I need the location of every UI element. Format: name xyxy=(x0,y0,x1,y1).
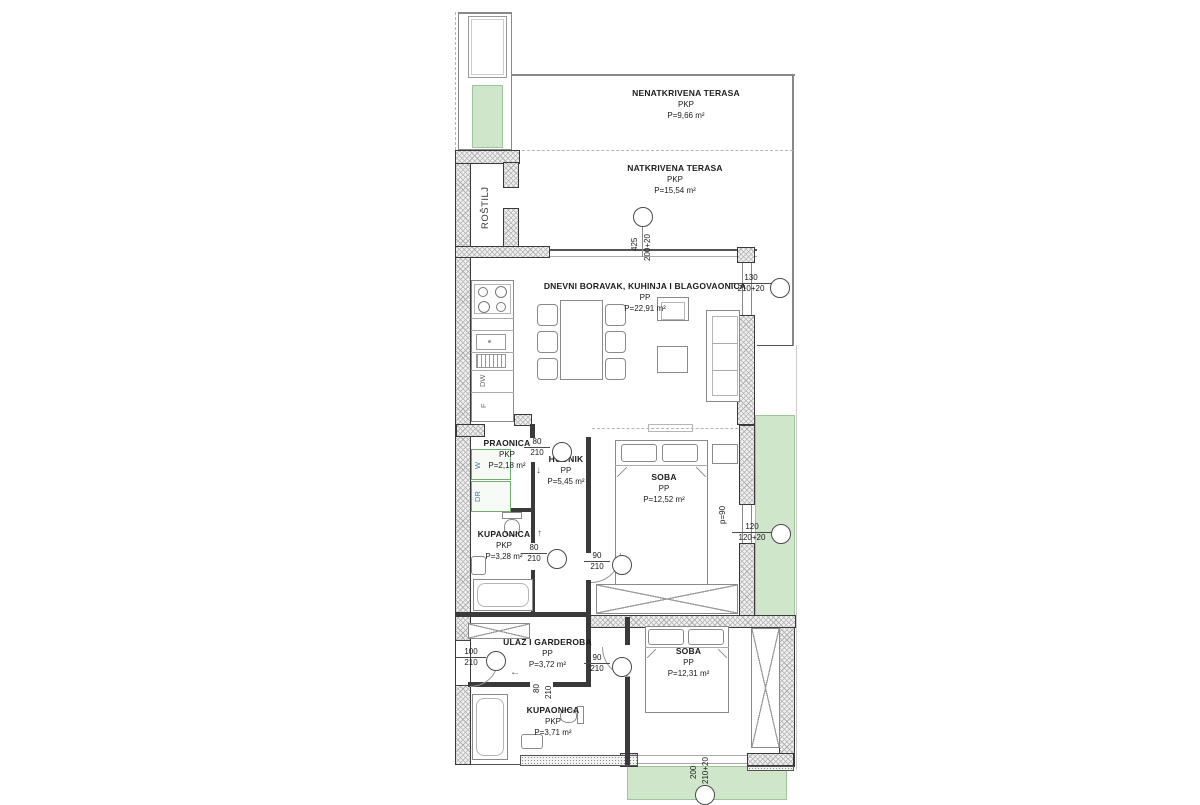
chair xyxy=(605,358,626,380)
bed-line xyxy=(615,465,708,466)
pillow xyxy=(621,444,657,462)
dim-circle xyxy=(552,442,572,462)
chair xyxy=(537,358,558,380)
dishwasher-label: DW xyxy=(479,372,487,390)
site-edge-east xyxy=(796,345,797,770)
room-label-soba-1: SOBA PP P=12,52 m² xyxy=(608,472,720,505)
terrace-divider-dashed xyxy=(512,150,793,151)
dim-circle xyxy=(633,207,653,227)
window-200-glass xyxy=(638,755,747,756)
wall-soba1-east-lower xyxy=(739,543,755,617)
dim-soba1-window: 120 120+20 xyxy=(732,522,772,543)
dim-height: 120+20 xyxy=(732,533,772,543)
dish-rack xyxy=(476,354,506,368)
wall-praonica-corner xyxy=(456,424,485,437)
wall-kitchen-north xyxy=(455,246,550,258)
room-type: PKP xyxy=(667,175,683,186)
room-type: PKP xyxy=(678,100,694,111)
room-area: P=15,54 m² xyxy=(654,186,696,197)
threshold-south xyxy=(520,755,638,766)
room-type: PP xyxy=(683,658,694,669)
dim-width: 80 xyxy=(524,437,550,448)
dim-height: 210 xyxy=(521,554,547,564)
room-area: P=5,45 m² xyxy=(547,477,584,488)
dim-height: 210 xyxy=(584,562,610,572)
room-area: P=3,71 m² xyxy=(534,728,571,739)
beam-marker xyxy=(648,424,693,432)
wall-pillar-ne xyxy=(737,247,755,263)
dim-parapet: p=90 xyxy=(719,500,727,530)
pillow xyxy=(688,629,724,645)
stove-burner xyxy=(478,287,488,297)
room-area: P=9,66 m² xyxy=(667,111,704,122)
wall-rostilj-right-upper xyxy=(503,162,519,188)
wall-segment xyxy=(625,677,630,765)
dim-width: 120 xyxy=(732,522,772,533)
dim-dnevni-door: 130 210+20 xyxy=(730,273,772,294)
room-label-natkrivena-terasa: NATKRIVENA TERASA PKP P=15,54 m² xyxy=(575,163,775,196)
dim-circle xyxy=(695,785,715,805)
counter-divider xyxy=(471,352,514,353)
room-name: SOBA xyxy=(651,472,676,484)
terrace-east-edge xyxy=(792,74,794,346)
dim-kupaonica2-door-height: 210 xyxy=(545,678,553,706)
room-name: NATKRIVENA TERASA xyxy=(627,163,723,175)
sofa-divider xyxy=(712,370,738,371)
dim-circle xyxy=(547,549,567,569)
room-name: KUPAONICA xyxy=(527,705,580,717)
room-area: P=2,18 m² xyxy=(488,461,525,472)
counter-divider xyxy=(471,392,514,393)
room-name: KUPAONICA xyxy=(478,529,531,541)
dim-width: 100 xyxy=(456,647,486,658)
dim-circle xyxy=(486,651,506,671)
pillow xyxy=(662,444,698,462)
room-type: PP xyxy=(640,293,651,304)
room-name: NENATKRIVENA TERASA xyxy=(632,88,740,100)
wardrobe xyxy=(751,628,780,748)
room-area: P=12,31 m² xyxy=(668,669,710,680)
room-label-nenatkrivena-terasa: NENATKRIVENA TERASA PKP P=9,66 m² xyxy=(586,88,786,121)
counter-divider xyxy=(471,370,514,371)
green-area-east xyxy=(755,415,795,625)
room-area: P=22,91 m² xyxy=(624,304,666,315)
room-name: SOBA xyxy=(676,646,701,658)
room-type: PKP xyxy=(545,717,561,728)
sink-drain xyxy=(488,340,491,343)
bathtub-inner xyxy=(477,583,529,607)
wardrobe xyxy=(596,584,738,614)
stove-burner xyxy=(495,286,507,298)
wall-segment xyxy=(586,580,591,615)
chair xyxy=(537,331,558,353)
room-area: P=3,72 m² xyxy=(529,660,566,671)
toilet-tank xyxy=(502,512,522,519)
counter-divider xyxy=(471,330,514,331)
dim-soba2-window-width: 200 xyxy=(690,758,698,786)
kitchen-sink xyxy=(476,334,506,350)
dim-height: 210+20 xyxy=(730,284,772,294)
stove-burner xyxy=(496,302,506,312)
dim-width: 90 xyxy=(584,551,610,562)
dim-width: 90 xyxy=(584,653,610,664)
wall-segment xyxy=(625,617,630,645)
balcony-window xyxy=(468,16,507,78)
terrace-south-edge xyxy=(757,345,793,346)
dryer-label: DR xyxy=(474,487,482,507)
dim-praonica-door: 80 210 xyxy=(524,437,550,458)
dim-soba1-door: 90 210 xyxy=(584,551,610,572)
site-boundary-line xyxy=(455,12,456,150)
wall-segment xyxy=(553,682,591,687)
chair xyxy=(605,331,626,353)
room-type: PKP xyxy=(499,450,515,461)
room-area: P=12,52 m² xyxy=(643,495,685,506)
sofa-divider xyxy=(712,343,738,344)
dim-circle xyxy=(612,555,632,575)
room-type: PP xyxy=(659,484,670,495)
room-name: DNEVNI BORAVAK, KUHINJA I BLAGOVAONICA xyxy=(544,281,746,293)
dim-width: 80 xyxy=(521,543,547,554)
wall-south-right xyxy=(747,753,794,766)
nightstand xyxy=(712,444,738,464)
dim-terasa-width: 425 xyxy=(631,227,639,261)
room-area: P=3,28 m² xyxy=(485,552,522,563)
coffee-table xyxy=(657,346,688,373)
dim-entry-door: 100 210 xyxy=(456,647,486,668)
pillow xyxy=(648,629,684,645)
room-type: PKP xyxy=(496,541,512,552)
dim-kupaonica2-door-width: 80 xyxy=(533,678,541,700)
dim-circle xyxy=(612,657,632,677)
wall-segment xyxy=(456,612,591,617)
room-label-kupaonica-2: KUPAONICA PKP P=3,71 m² xyxy=(493,705,613,738)
wall-rostilj-right-lower xyxy=(503,208,519,248)
threshold-south-right xyxy=(747,766,794,771)
wall-segment xyxy=(530,424,535,438)
wall-soba2-east xyxy=(779,627,795,767)
wall-soba1-east-upper xyxy=(739,425,755,505)
dim-kupaonica1-door: 80 210 xyxy=(521,543,547,564)
dim-height: 210 xyxy=(456,658,486,668)
dim-soba2-door: 90 210 xyxy=(584,653,610,674)
dim-height: 210 xyxy=(524,448,550,458)
floor-plan: DW F W DR ↓ ↑ ← xyxy=(0,0,1200,800)
dim-circle xyxy=(771,524,791,544)
terrace-north-edge xyxy=(512,74,795,76)
counter-divider xyxy=(471,318,514,319)
sofa-cushions xyxy=(712,316,738,396)
dim-circle xyxy=(770,278,790,298)
dim-height: 210 xyxy=(584,664,610,674)
dim-width: 130 xyxy=(730,273,772,284)
dim-soba2-window-height: 210+20 xyxy=(702,754,710,788)
stove-burner xyxy=(478,301,490,313)
room-name: ULAZ I GARDEROBA xyxy=(503,637,592,649)
fridge-label: F xyxy=(480,400,488,412)
dim-terasa-height: 200+20 xyxy=(644,227,652,269)
room-type: PP xyxy=(561,466,572,477)
room-label-soba-2: SOBA PP P=12,31 m² xyxy=(631,646,746,679)
room-label-rostilj: ROŠTILJ xyxy=(481,172,491,244)
room-type: PP xyxy=(542,649,553,660)
